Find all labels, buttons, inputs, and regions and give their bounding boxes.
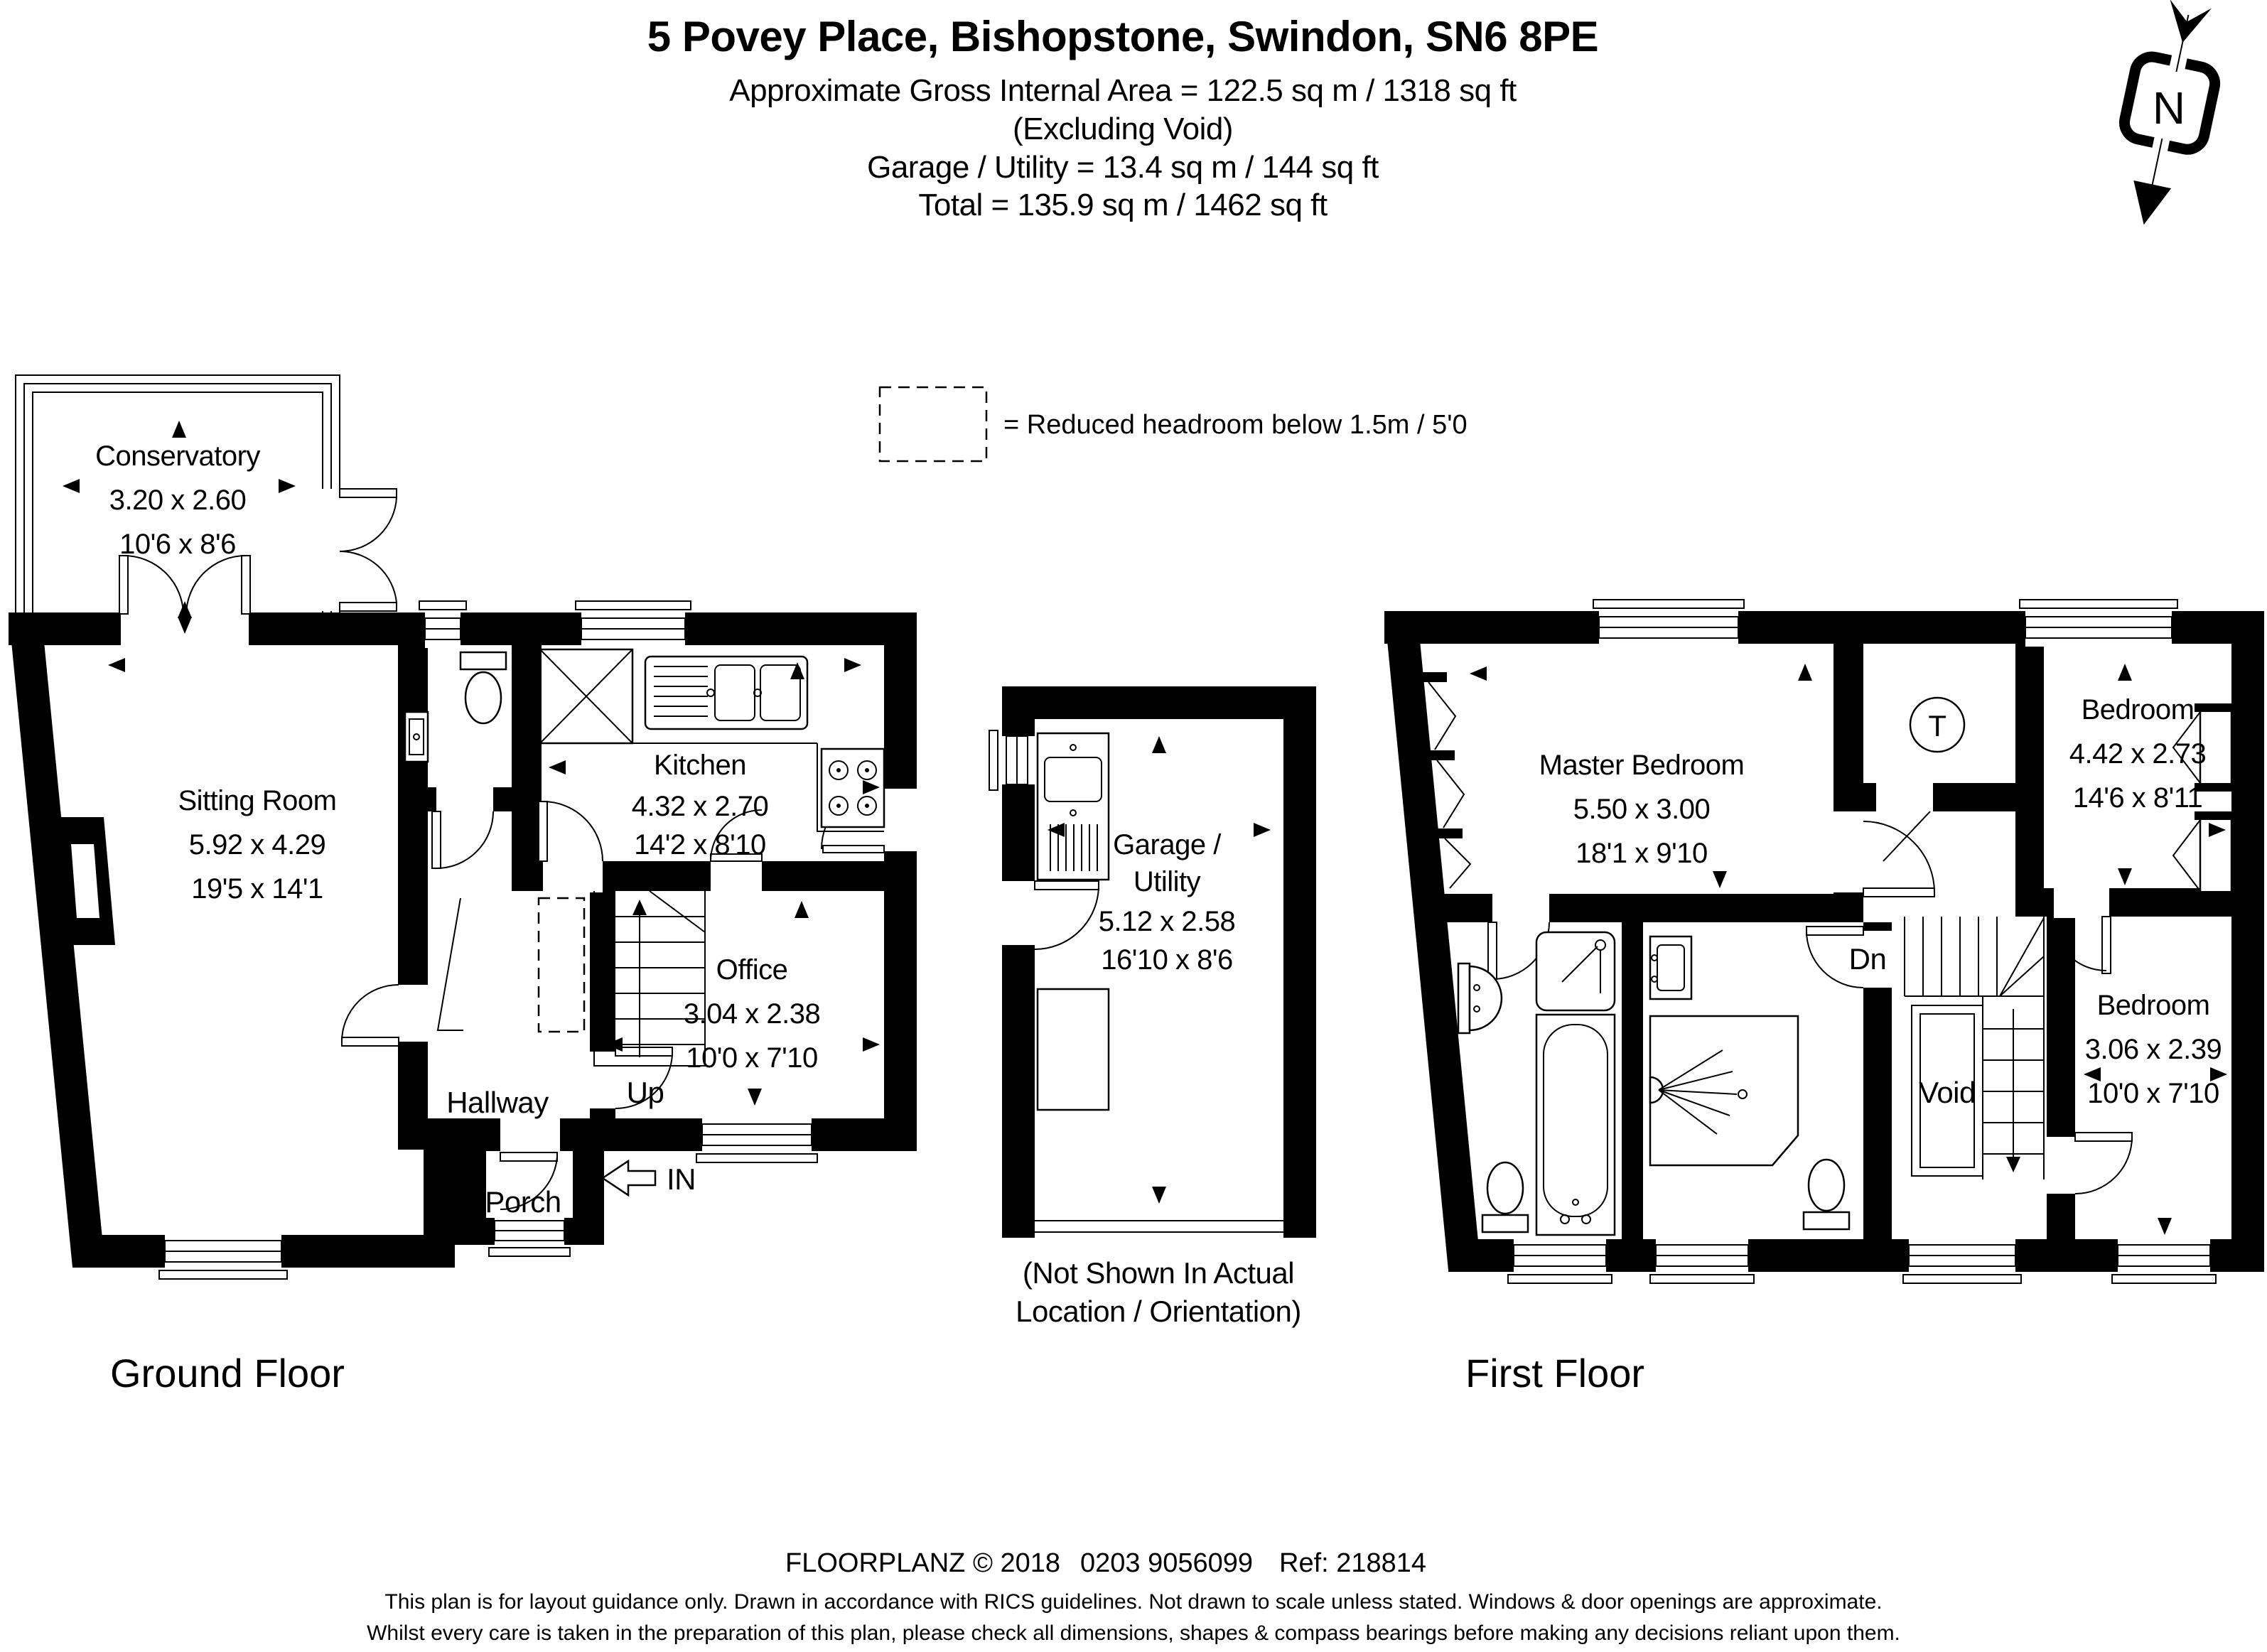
garage-door-side <box>1035 881 1099 949</box>
footer-disclaimer-1: This plan is for layout guidance only. D… <box>384 1590 1882 1614</box>
total-area: Total = 135.9 sq m / 1462 sq ft <box>918 188 1327 222</box>
garage-sink-icon <box>1038 733 1109 880</box>
kitchen-sink-icon <box>645 657 807 729</box>
void-label: Void <box>1919 1076 1976 1109</box>
shower-icon <box>1536 932 1615 1010</box>
shower-enclosure-icon <box>1650 1016 1798 1165</box>
porch-label: Porch <box>485 1185 561 1219</box>
void: Void <box>1912 1005 1983 1176</box>
ground-floor-title: Ground Floor <box>110 1351 345 1395</box>
kitchen-name: Kitchen <box>654 750 746 781</box>
garage-imperial: 16'10 x 8'6 <box>1101 944 1232 976</box>
sink-icon <box>405 712 428 762</box>
north-compass-icon: N <box>2104 0 2231 233</box>
reduced-headroom-area <box>438 898 584 1032</box>
footer-ref: Ref: 218814 <box>1279 1548 1426 1578</box>
bedroom-3-name: Bedroom <box>2097 990 2210 1021</box>
toilet-icon <box>1804 1160 1849 1229</box>
footer: FLOORPLANZ © 2018 0203 9056099 Ref: 2188… <box>367 1548 1900 1645</box>
garage-note-1: (Not Shown In Actual <box>1023 1256 1294 1290</box>
ground-floor-plan: Conservatory 3.20 x 2.60 10'6 x 8'6 <box>9 375 918 1395</box>
garage-name-1: Garage / <box>1113 829 1222 860</box>
first-floor-plan: T Dn Void <box>1384 600 2264 1395</box>
compass-arrowhead <box>2125 180 2171 229</box>
stairs-down-label: Dn <box>1849 942 1887 976</box>
bedroom-3-metric: 3.06 x 2.39 <box>2085 1034 2222 1065</box>
master-bedroom-imperial: 18'1 x 9'10 <box>1576 838 1707 869</box>
footer-disclaimer-2: Whilst every care is taken in the prepar… <box>367 1621 1900 1645</box>
shower-room-sink-icon <box>1650 936 1691 999</box>
conservatory-metric: 3.20 x 2.60 <box>109 485 246 516</box>
kitchen-metric: 4.32 x 2.70 <box>632 791 768 822</box>
bedroom-3-imperial: 10'0 x 7'10 <box>2087 1078 2219 1109</box>
compass-north-label: N <box>2153 82 2185 134</box>
tank-label: T <box>1928 709 1946 743</box>
legend-text: = Reduced headroom below 1.5m / 5'0 <box>1003 410 1468 440</box>
stairs-up-label: Up <box>627 1076 664 1109</box>
bedroom-2-name: Bedroom <box>2082 694 2195 725</box>
bathroom <box>1458 932 1615 1235</box>
gross-internal-area: Approximate Gross Internal Area = 122.5 … <box>729 73 1517 108</box>
garage-name-2: Utility <box>1133 866 1201 897</box>
floorplan-page: 5 Povey Place, Bishopstone, Swindon, SN6… <box>0 0 2267 1652</box>
garage-plan: Garage / Utility 5.12 x 2.58 16'10 x 8'6… <box>989 686 1316 1328</box>
door-arc <box>340 497 397 551</box>
conservatory-imperial: 10'6 x 8'6 <box>119 529 236 560</box>
excluding-void: (Excluding Void) <box>1013 112 1233 146</box>
hallway-label: Hallway <box>446 1086 549 1119</box>
garage-bench <box>1038 989 1109 1110</box>
garage-note-2: Location / Orientation) <box>1016 1295 1301 1328</box>
entrance: IN <box>603 1161 696 1196</box>
conservatory-name: Conservatory <box>95 441 260 472</box>
sitting-room-name: Sitting Room <box>178 785 337 816</box>
shower-room <box>1650 936 1849 1229</box>
in-label: IN <box>667 1162 696 1196</box>
toilet-icon <box>1482 1162 1528 1232</box>
sitting-room-metric: 5.92 x 4.29 <box>189 829 325 860</box>
header: 5 Povey Place, Bishopstone, Swindon, SN6… <box>647 13 1598 222</box>
legend: = Reduced headroom below 1.5m / 5'0 <box>880 387 1468 461</box>
footer-phone: 0203 9056099 <box>1080 1548 1253 1578</box>
footer-brand: FLOORPLANZ © 2018 <box>785 1548 1060 1578</box>
master-bedroom-name: Master Bedroom <box>1539 750 1745 781</box>
door-arc <box>340 551 397 603</box>
conservatory: Conservatory 3.20 x 2.60 10'6 x 8'6 <box>16 375 397 645</box>
first-floor-title: First Floor <box>1465 1351 1644 1395</box>
sitting-room-imperial: 19'5 x 14'1 <box>191 873 323 905</box>
toilet-icon <box>461 652 506 723</box>
compass-fletching <box>2162 0 2212 47</box>
office-name: Office <box>716 954 788 986</box>
bedroom-2-imperial: 14'6 x 8'11 <box>2073 782 2203 814</box>
garage-metric: 5.12 x 2.58 <box>1099 906 1235 937</box>
garage-utility-area: Garage / Utility = 13.4 sq m / 144 sq ft <box>867 150 1379 185</box>
garage-door <box>1035 1221 1283 1232</box>
bedroom-2-metric: 4.42 x 2.73 <box>2069 738 2206 770</box>
in-arrow-icon <box>603 1161 655 1195</box>
office-metric: 3.04 x 2.38 <box>684 998 820 1030</box>
tank-cupboard: T <box>1910 698 1964 752</box>
reduced-headroom-legend-box <box>880 387 986 461</box>
page-title: 5 Povey Place, Bishopstone, Swindon, SN6… <box>647 13 1598 60</box>
master-bedroom-metric: 5.50 x 3.00 <box>1573 794 1710 825</box>
bath-icon <box>1536 1015 1615 1235</box>
kitchen-imperial: 14'2 x 8'10 <box>634 829 765 860</box>
office-imperial: 10'0 x 7'10 <box>686 1042 817 1074</box>
